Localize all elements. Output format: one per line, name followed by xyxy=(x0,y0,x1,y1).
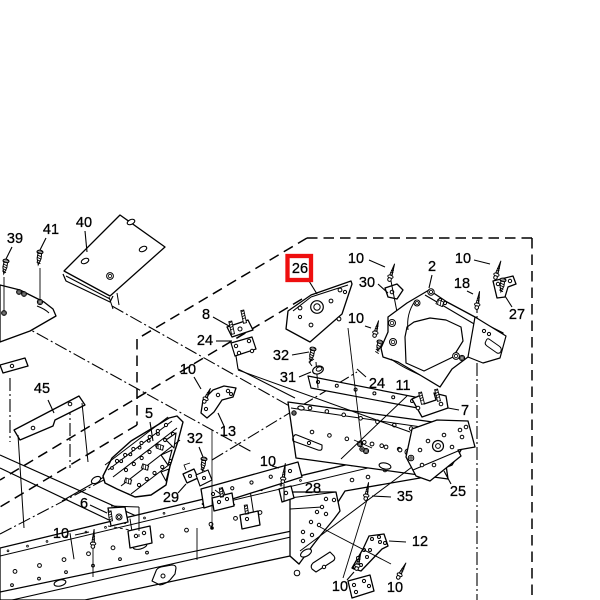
svg-text:24: 24 xyxy=(197,333,213,349)
svg-text:29: 29 xyxy=(163,490,179,506)
svg-text:10: 10 xyxy=(53,526,69,542)
svg-text:39: 39 xyxy=(7,231,23,247)
svg-text:13: 13 xyxy=(220,424,236,440)
svg-text:8: 8 xyxy=(202,307,210,323)
svg-text:5: 5 xyxy=(145,406,153,422)
svg-text:24: 24 xyxy=(369,376,385,392)
svg-text:45: 45 xyxy=(34,381,50,397)
svg-text:28: 28 xyxy=(305,481,321,497)
svg-text:18: 18 xyxy=(454,276,470,292)
svg-text:2: 2 xyxy=(428,259,436,275)
svg-text:31: 31 xyxy=(280,370,296,386)
svg-text:30: 30 xyxy=(359,275,375,291)
svg-text:10: 10 xyxy=(332,579,348,595)
svg-text:10: 10 xyxy=(387,580,403,596)
svg-text:41: 41 xyxy=(43,222,59,238)
svg-text:11: 11 xyxy=(395,378,410,394)
svg-text:12: 12 xyxy=(412,534,428,550)
svg-text:40: 40 xyxy=(76,215,92,231)
svg-text:10: 10 xyxy=(455,251,471,267)
svg-text:10: 10 xyxy=(260,454,276,470)
svg-text:26: 26 xyxy=(292,261,308,277)
svg-text:6: 6 xyxy=(80,496,88,512)
svg-text:10: 10 xyxy=(180,362,196,378)
svg-text:35: 35 xyxy=(397,489,413,505)
svg-text:10: 10 xyxy=(348,311,364,327)
svg-text:25: 25 xyxy=(450,484,466,500)
svg-text:10: 10 xyxy=(348,251,364,267)
svg-text:27: 27 xyxy=(509,307,525,323)
svg-text:32: 32 xyxy=(273,348,289,364)
svg-text:7: 7 xyxy=(461,403,469,419)
svg-text:32: 32 xyxy=(187,431,203,447)
